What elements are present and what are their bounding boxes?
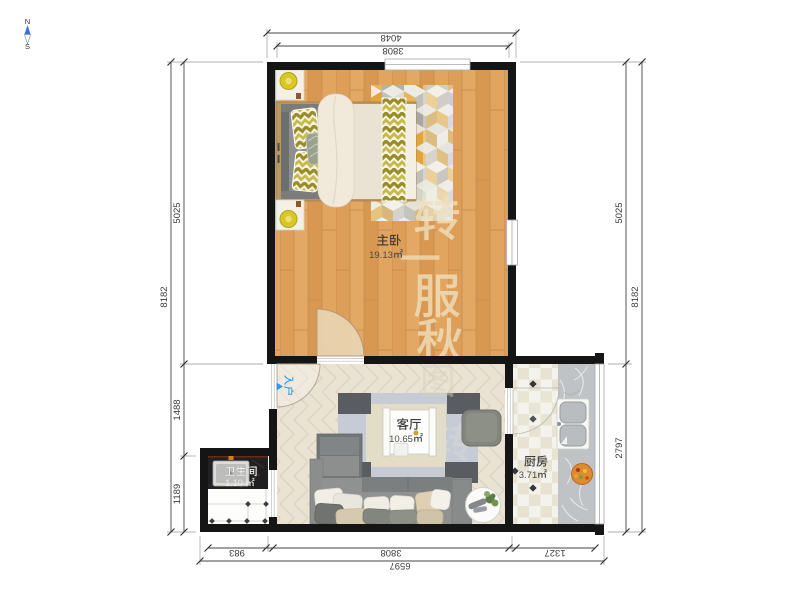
svg-text:N: N (25, 17, 30, 26)
svg-text:1189: 1189 (172, 484, 183, 504)
svg-text:6597: 6597 (389, 560, 410, 571)
svg-text:3808: 3808 (382, 45, 403, 56)
svg-text:19.13: 19.13 (369, 250, 393, 261)
svg-text:10.65: 10.65 (389, 434, 413, 445)
svg-text:1488: 1488 (172, 399, 183, 420)
svg-text:S: S (25, 42, 30, 51)
svg-text:3.71: 3.71 (519, 470, 538, 481)
svg-text:8182: 8182 (630, 286, 641, 307)
svg-text:3808: 3808 (380, 547, 401, 558)
svg-text:8182: 8182 (159, 286, 170, 307)
svg-text:5025: 5025 (614, 202, 625, 223)
svg-text:1.10: 1.10 (225, 478, 243, 488)
svg-text:983: 983 (229, 547, 245, 558)
svg-text:1327: 1327 (544, 547, 565, 558)
svg-text:5025: 5025 (172, 202, 183, 223)
svg-text:4048: 4048 (380, 32, 401, 43)
svg-text:2797: 2797 (614, 437, 625, 458)
